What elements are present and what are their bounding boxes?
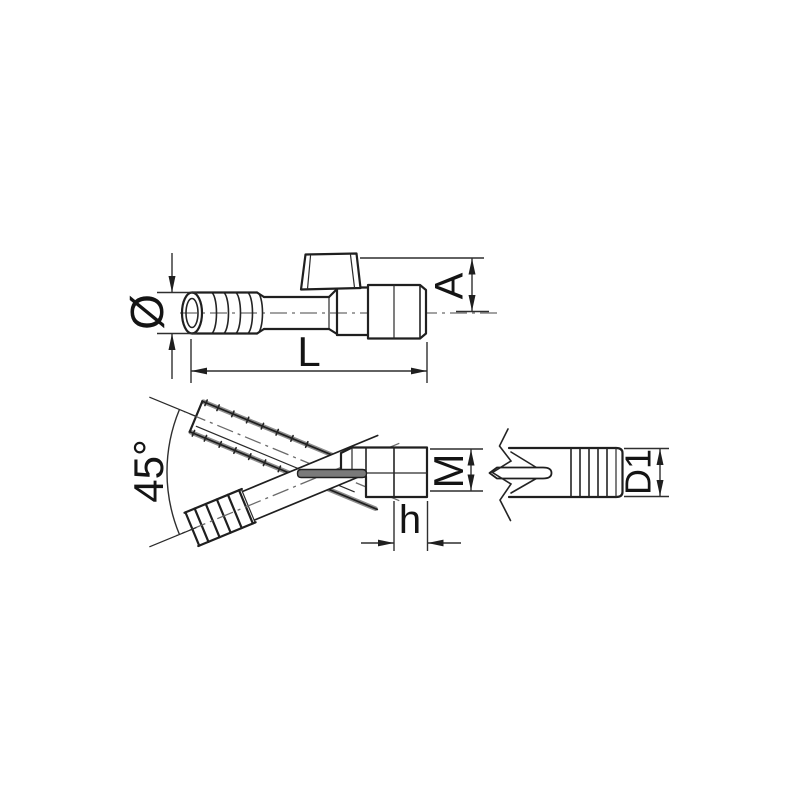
arrowhead xyxy=(378,540,394,547)
arrowhead xyxy=(428,540,444,547)
side-outlet xyxy=(301,254,361,290)
spout-web xyxy=(298,470,367,478)
arrowhead xyxy=(191,368,207,375)
hex-body xyxy=(337,288,368,336)
arrowhead xyxy=(169,334,176,351)
dim-label-diameter: Ø xyxy=(121,294,173,330)
dim-angle: 45° xyxy=(125,397,196,546)
section-barb-rings xyxy=(571,449,607,497)
drawing-canvas: Ø A L xyxy=(0,0,800,800)
arrowhead xyxy=(411,368,427,375)
dim-label-outlet-height: A xyxy=(428,272,472,299)
arrowhead xyxy=(169,276,176,293)
technical-drawing: Ø A L xyxy=(0,0,800,800)
side-view: Ø A L xyxy=(121,253,497,383)
inner-cone-upper xyxy=(511,452,538,469)
dim-label-thread-length: h xyxy=(399,498,421,542)
threaded-end xyxy=(368,285,426,339)
dim-thread-size: M xyxy=(425,449,483,491)
dim-label-thread-size: M xyxy=(425,454,472,489)
inner-cone-lower xyxy=(511,478,538,494)
arrowhead xyxy=(469,259,476,275)
dim-label-angle: 45° xyxy=(125,439,172,503)
dim-label-length: L xyxy=(297,328,320,375)
section-view: D1 xyxy=(490,429,670,521)
dim-spout-diameter: D1 xyxy=(618,449,669,497)
dim-label-spout-diameter: D1 xyxy=(618,449,659,495)
angled-view: 45° M h xyxy=(125,394,483,553)
